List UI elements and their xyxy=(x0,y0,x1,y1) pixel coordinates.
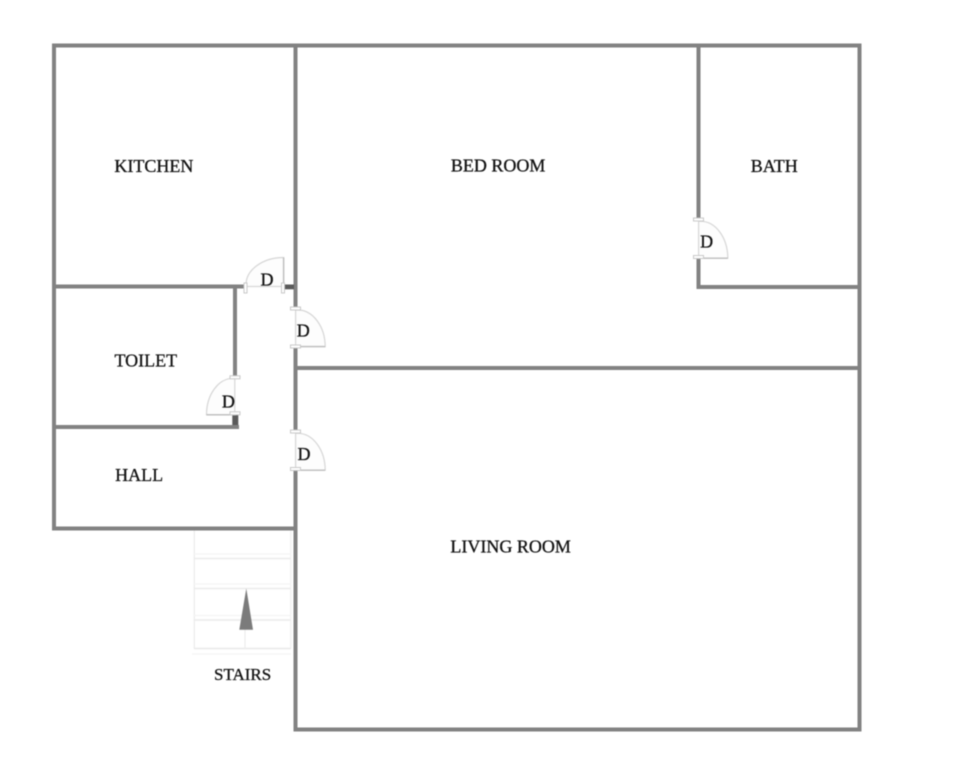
svg-text:BED ROOM: BED ROOM xyxy=(451,155,546,175)
svg-text:D: D xyxy=(222,391,235,411)
svg-text:KITCHEN: KITCHEN xyxy=(114,156,193,176)
svg-text:TOILET: TOILET xyxy=(114,351,177,371)
svg-text:LIVING ROOM: LIVING ROOM xyxy=(450,537,571,557)
svg-text:D: D xyxy=(298,444,311,464)
svg-text:D: D xyxy=(297,320,310,340)
svg-text:STAIRS: STAIRS xyxy=(214,665,271,684)
svg-text:HALL: HALL xyxy=(115,465,163,485)
svg-text:D: D xyxy=(261,270,274,290)
svg-text:D: D xyxy=(700,232,713,252)
svg-text:BATH: BATH xyxy=(751,156,798,176)
